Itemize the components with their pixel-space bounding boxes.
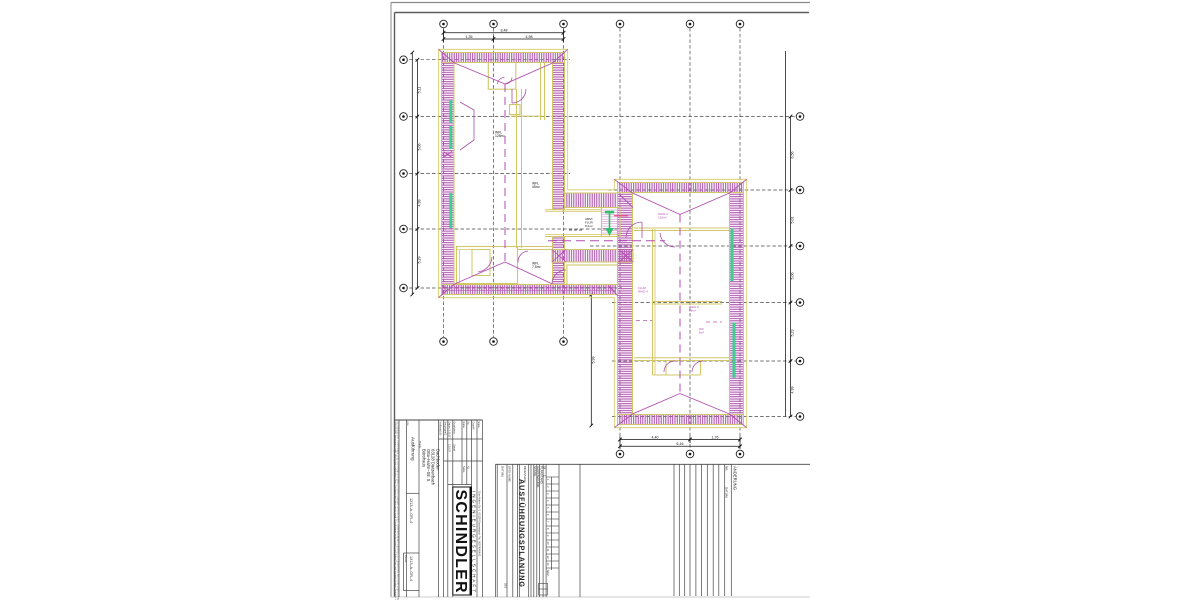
svg-text:zu Schadenersatz. Genehmigung: zu Schadenersatz. Genehmigung weder verv… (396, 422, 399, 600)
svg-text:8,2m²: 8,2m² (585, 224, 593, 228)
svg-text:Gezeichnet: Gezeichnet (453, 422, 456, 434)
svg-text:Bürohaus: Bürohaus (421, 449, 426, 467)
svg-text:Name: Name (462, 422, 465, 429)
svg-text:Datum: Datum (448, 422, 451, 429)
svg-text:WHG 4: WHG 4 (638, 290, 648, 294)
svg-text:4,99: 4,99 (418, 200, 422, 207)
svg-text:4,99: 4,99 (791, 387, 795, 394)
svg-text:1213–A–GR–4: 1213–A–GR–4 (409, 556, 413, 581)
svg-text:Name: Name (462, 466, 465, 473)
svg-text:DATO–NAME: DATO–NAME (508, 466, 512, 482)
svg-text:4,40: 4,40 (652, 435, 659, 439)
svg-text:Name: Name (477, 422, 480, 429)
svg-text:SCHINDLER: SCHINDLER (452, 490, 469, 593)
svg-text:6,16: 6,16 (677, 442, 684, 446)
svg-text:AUSFÜHRUNGSPLANUNG: AUSFÜHRUNGSPLANUNG (518, 479, 527, 587)
svg-text:5m²: 5m² (699, 331, 704, 335)
svg-text:5,99: 5,99 (592, 357, 596, 364)
svg-text:6,56: 6,56 (791, 152, 795, 159)
svg-text:GEZ.: GEZ. (546, 570, 550, 577)
svg-text:5,06: 5,06 (418, 144, 422, 151)
svg-text:7,5m²: 7,5m² (532, 265, 542, 269)
svg-text:Dachboden: Dachboden (435, 449, 440, 471)
svg-text:1:50: 1:50 (438, 431, 441, 436)
svg-text:1,76: 1,76 (712, 435, 719, 439)
svg-text:Ausführung: Ausführung (410, 437, 415, 461)
svg-text:5,29: 5,29 (418, 257, 422, 264)
svg-text:Plan-Nr.: Plan-Nr. (404, 555, 407, 563)
svg-text:45m²: 45m² (532, 185, 541, 189)
svg-text:5,06: 5,06 (791, 273, 795, 280)
svg-text:8,48: 8,48 (501, 29, 508, 33)
svg-text:INGENIEURGESELLSCHAFT: INGENIEURGESELLSCHAFT (472, 491, 477, 592)
svg-text:120m²: 120m² (658, 216, 667, 220)
svg-text:Otto–Hahn–Str. 5: Otto–Hahn–Str. 5 (426, 449, 431, 482)
svg-text:98m²: 98m² (689, 309, 696, 313)
svg-text:Projekt :: Projekt : (419, 441, 422, 449)
svg-text:1:: 1: (543, 475, 547, 477)
svg-text:5,11: 5,11 (418, 87, 422, 94)
svg-text:LPH: LPH (406, 422, 408, 427)
svg-text:2.10.07: 2.10.07 (448, 444, 451, 453)
svg-text:NR.: NR. (725, 466, 729, 471)
svg-text:2.10.07: 2.10.07 (448, 430, 451, 439)
svg-text:5,23: 5,23 (791, 330, 795, 337)
svg-text:Otto–Hahn–Str. 5 63128 Dietze: Otto–Hahn–Str. 5 63128 Dietzenbach Tel. … (477, 491, 481, 557)
svg-text:DATUM: DATUM (725, 487, 729, 498)
svg-text:5,01: 5,01 (791, 217, 795, 224)
svg-text:ÄNDERUNG: ÄNDERUNG (732, 466, 737, 490)
svg-text:DATUM: DATUM (501, 466, 505, 477)
svg-text:Datum: Datum (453, 444, 456, 451)
svg-text:02.6: 02.6 (504, 583, 508, 589)
svg-text:4,98: 4,98 (526, 35, 533, 39)
svg-text:63128 Dietzenbach: 63128 Dietzenbach (431, 449, 436, 486)
svg-text:128m²: 128m² (495, 134, 505, 138)
svg-text:Geprüft: Geprüft (471, 422, 474, 430)
svg-text:1213–A–GR–4: 1213–A–GR–4 (409, 498, 413, 523)
svg-text:1,35: 1,35 (466, 35, 473, 39)
